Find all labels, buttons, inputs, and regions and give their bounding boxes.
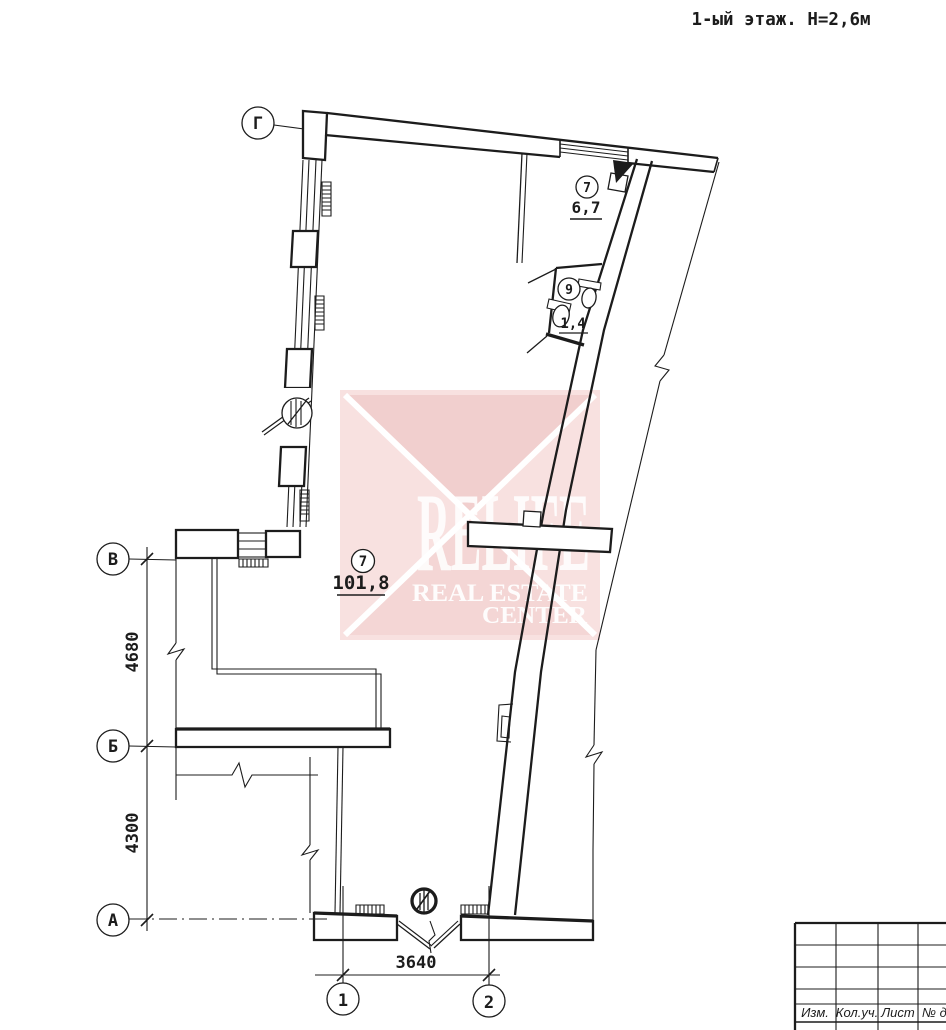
room-number: 9 [565, 283, 573, 298]
axis-label-1: 1 [338, 991, 348, 1011]
axis-leader [129, 559, 176, 560]
window-v-axis [238, 533, 266, 557]
wall-pier [285, 349, 312, 388]
hatched-step [461, 905, 488, 914]
hatched-step [322, 182, 331, 216]
title-block-col-list: Лист [880, 1005, 915, 1020]
entrance-door [397, 921, 460, 953]
axis-label-a: А [108, 911, 118, 931]
floor-plan-svg: RELIFE REAL ESTATE CENTER [0, 0, 946, 1030]
wall-block [176, 530, 238, 558]
wall-top-inner [628, 163, 714, 172]
room-area: 6,7 [572, 198, 601, 217]
partition [517, 153, 522, 263]
title-block-col-izm: Изм. [801, 1005, 829, 1020]
wall-pier [279, 447, 306, 486]
room-number: 7 [359, 554, 367, 570]
wall-top-end-cap [714, 158, 718, 172]
room-area: 101,8 [332, 572, 389, 594]
axis-label-v: В [108, 550, 118, 570]
break-line [176, 763, 318, 787]
vent-shaft-marker [608, 160, 634, 192]
axis-label-gamma: Г [253, 114, 263, 134]
axis-label-b: Б [108, 737, 118, 757]
floor-plan-sheet: RELIFE REAL ESTATE CENTER [0, 0, 946, 1030]
wall-top-outer [327, 113, 718, 158]
title-block-col-ndok: № док [922, 1005, 946, 1020]
extension-line [168, 545, 184, 800]
sink-fixture [578, 279, 601, 309]
dim-value-4680: 4680 [123, 632, 143, 673]
door-leaf [528, 269, 556, 283]
partition [522, 153, 527, 263]
wall-b-axis [176, 729, 390, 747]
partition [335, 747, 338, 913]
hatched-step [239, 559, 268, 567]
break-line [302, 757, 318, 913]
axis-leader [129, 746, 176, 747]
drawing-title: 1-ый этаж. Н=2,6м [691, 10, 870, 30]
vent-riser-icon [412, 889, 436, 913]
dim-value-4300: 4300 [123, 813, 143, 854]
wall-pier [291, 231, 318, 267]
wc-wall-top [556, 264, 602, 268]
duct-shaft [523, 511, 541, 527]
title-block-col-koluch: Кол.уч. [836, 1005, 878, 1020]
room-label-hall: 7 6,7 [570, 176, 602, 219]
dim-value-3640: 3640 [396, 953, 437, 973]
watermark-subtitle-2: CENTER [482, 603, 588, 629]
wc-wall-bottom [546, 334, 584, 345]
room-number: 7 [583, 181, 591, 196]
title-block: Изм. Кол.уч. Лист № док [795, 923, 946, 1030]
axis-leader [274, 125, 304, 129]
wall-corner-pier [303, 111, 327, 160]
hatched-step [356, 905, 384, 914]
vent-riser-icon [282, 398, 312, 428]
room-area: 1,4 [560, 316, 585, 332]
wall-top-inner [325, 135, 560, 157]
door-leaf [527, 336, 547, 353]
axis-label-2: 2 [484, 993, 494, 1013]
wall-block [266, 531, 300, 557]
